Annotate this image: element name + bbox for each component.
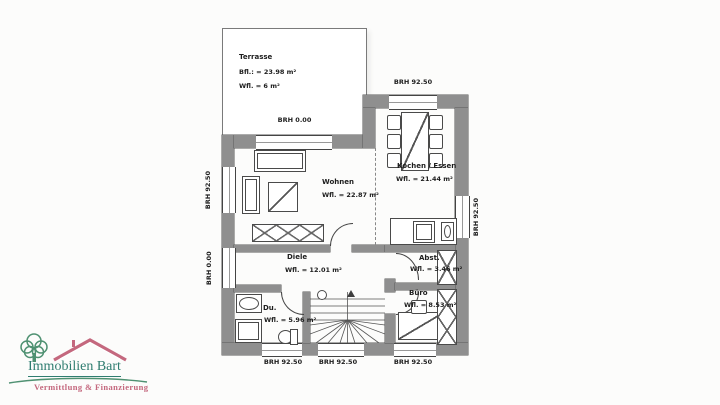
room-area-kochen: Wfl. = 21.44 m² (396, 176, 453, 183)
brh-mark-top: BRH 92.50 (383, 79, 443, 86)
window (394, 343, 436, 357)
window (256, 135, 332, 150)
floor-plan-scan: Terrasse Bfl.: = 23.98 m² Wfl. = 6 m² BR… (0, 0, 720, 405)
terrasse-bfl-value: Bfl.: = 23.98 m² (239, 68, 296, 76)
window (318, 343, 364, 357)
terrasse-wfl-value: Wfl. = 6 m² (239, 82, 280, 90)
shower (235, 319, 262, 343)
wall-segment (385, 314, 395, 343)
room-area-buero: Wfl. = 8.53 m² (404, 302, 456, 309)
room-name-kochen: Kochen / Essen (397, 163, 456, 170)
entry-door-opening (222, 248, 236, 288)
door-arc (281, 292, 304, 315)
wall-segment (234, 285, 281, 292)
room-name-buero: Büro (409, 290, 428, 297)
room-name-terrasse: Terrasse (239, 53, 272, 61)
room-name-abst: Abst. (419, 255, 440, 262)
logo-subtitle: Vermittlung & Finanzierung (34, 382, 148, 392)
room-name-diele: Diele (287, 254, 307, 261)
sideboard (252, 224, 324, 242)
kitchen-sink (441, 222, 454, 241)
wall-segment (385, 279, 395, 292)
dining-chair (387, 134, 401, 149)
stair-direction-icon (347, 290, 355, 297)
closet (437, 289, 457, 345)
bathroom-sink (236, 294, 262, 313)
brh-mark-bottom-right: BRH 92.50 (388, 359, 438, 366)
window (455, 196, 470, 238)
armchair (242, 176, 260, 214)
wall-segment (234, 245, 330, 252)
logo-title: Immobilien Bart (28, 359, 121, 377)
company-logo: Immobilien Bart Vermittlung & Finanzieru… (8, 332, 158, 402)
wall-segment (352, 245, 385, 252)
brh-mark-terrasse: BRH 0.00 (223, 116, 366, 124)
toilet-tank (290, 329, 298, 345)
dining-chair (387, 115, 401, 130)
brh-mark-right: BRH 92.50 (473, 198, 480, 236)
window (222, 167, 236, 213)
room-area-diele: Wfl. = 12.01 m² (285, 267, 342, 274)
coffee-table (268, 182, 298, 212)
room-area-du: Wfl. = 5.96 m² (264, 317, 316, 324)
sofa (254, 150, 306, 172)
wall-segment (363, 108, 375, 148)
brh-mark-left-lower: BRH 0.00 (206, 249, 213, 287)
dining-chair (429, 134, 443, 149)
room-area-wohnen: Wfl. = 22.87 m² (322, 192, 379, 199)
room-name-du: Du. (263, 305, 276, 312)
dining-chair (429, 115, 443, 130)
brh-mark-bottom-mid: BRH 92.50 (313, 359, 363, 366)
stove (413, 221, 435, 243)
room-area-abst: Wfl. = 3.46 m² (410, 266, 462, 273)
room-name-wohnen: Wohnen (322, 179, 354, 186)
window (262, 343, 302, 357)
stair-start-marker (317, 290, 327, 300)
brh-mark-bottom-left: BRH 92.50 (258, 359, 308, 366)
door-arc (330, 223, 353, 246)
logo-house-tree-icon (16, 332, 140, 362)
brh-mark-left-upper: BRH 92.50 (205, 171, 212, 209)
terrace-outline: Terrasse Bfl.: = 23.98 m² Wfl. = 6 m² BR… (222, 28, 367, 136)
window (389, 95, 437, 110)
